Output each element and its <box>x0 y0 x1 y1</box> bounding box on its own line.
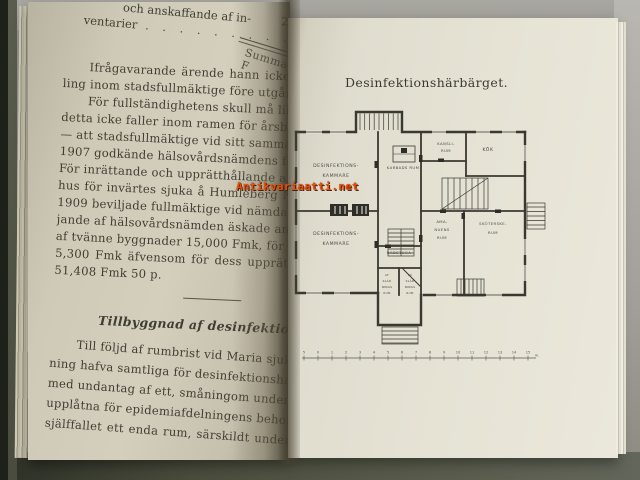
scale-number: 1 <box>331 351 333 355</box>
text-line: Till följd af rumbrist vid Maria sjukh <box>50 333 290 371</box>
scale-number: 15 <box>526 351 531 355</box>
disinfection-oven <box>330 204 369 216</box>
text-line: med undantag af ett, småningom under år <box>47 373 290 411</box>
dot-leader: . . . . . . . . . . <box>145 17 290 46</box>
watermark: Antikvariaatti.net <box>236 180 359 193</box>
scale-number: 11 <box>470 351 475 355</box>
porch-steps <box>360 114 398 131</box>
left-page-paragraph: Till följd af rumbrist vid Maria sjukh n… <box>44 333 290 451</box>
text-line: 51,408 Fmk 50 p. <box>54 262 290 290</box>
section-divider <box>183 298 241 302</box>
room-label: KAMMARE <box>322 173 349 179</box>
text-line: ning hafva samtliga för desinfektionshär… <box>49 353 290 391</box>
room-label: AF <box>385 273 389 277</box>
room-label: NINGS <box>405 285 416 289</box>
text-line: och anskaffande af in- <box>85 2 252 26</box>
scale-number: 7 <box>415 351 417 355</box>
left-page-top-fragment: och anskaffande af in- 2,5 ventarier . .… <box>83 2 290 47</box>
scale-number: 5 <box>387 351 389 355</box>
text-line: detta icke faller inom ramen för årsberä… <box>61 109 290 137</box>
room-label: RUM <box>383 291 391 295</box>
room-labels: DESINFEKTIONS- KAMMARE KARBADS RUM KANSL… <box>313 141 507 295</box>
scale-number: 14 <box>512 351 517 355</box>
room-label: RUM <box>437 235 447 240</box>
scale-number: 10 <box>456 351 461 355</box>
right-page: Desinfektionshärbärget. <box>288 18 618 458</box>
room-label: RUM <box>441 148 451 153</box>
text-line: — att stadsfullmäktige vid sitt sammantr… <box>60 126 290 154</box>
text-line: jande af hälsovårdsnämden äskade anslag <box>56 211 290 239</box>
room-label: KANSLI- <box>437 141 455 146</box>
room-label: KARBADS RUM <box>387 165 420 170</box>
text-line: upplåtna för epidemiafdelningens behof. <box>46 393 290 431</box>
scale-unit: m. <box>535 354 540 358</box>
scale-number: 2 <box>345 351 347 355</box>
text-line: ventarier <box>83 12 138 33</box>
text-line: 1909 beviljade fullmäktige vid nämda sam <box>57 194 290 222</box>
scale-number: 9 <box>443 351 446 355</box>
room-label: RUM <box>488 230 498 235</box>
text-line: själffallet ett enda rum, särskildt unde… <box>44 413 290 451</box>
room-label: RUM <box>406 291 414 295</box>
room-label: PÅ <box>408 272 412 277</box>
stair-bottom-right <box>457 279 484 296</box>
room-label: DESINFEKTIONS- <box>313 231 359 237</box>
left-page: och anskaffande af in- 2,5 ventarier . .… <box>28 2 290 460</box>
floor-plan-svg: DESINFEKTIONS- KAMMARE KARBADS RUM KANSL… <box>290 101 550 371</box>
text-line: 5,300 Fmk äfvensom för dess upprätth <box>55 245 290 273</box>
page-block-edges-right <box>616 22 626 454</box>
room-label: NUENS <box>434 227 449 232</box>
room-label: KLÄD <box>406 278 415 283</box>
text-line: af tvänne byggnader 15,000 Fmk, för sjuk <box>56 228 290 256</box>
scale-number: 6 <box>401 351 404 355</box>
scale-number: 4 <box>373 351 376 355</box>
plan-title: Desinfektionshärbärget. <box>345 75 508 90</box>
room-label: DESINFEKTIONS- <box>313 163 359 169</box>
stove <box>393 146 415 162</box>
floor-plan: DESINFEKTIONS- KAMMARE KARBADS RUM KANSL… <box>290 101 550 371</box>
scale-number: 13 <box>498 351 503 355</box>
text-line: ling inom stadsfullmäktige före utgången… <box>62 75 290 103</box>
text-line: 1907 godkände hälsovårdsnämdens förslag … <box>59 143 290 171</box>
scale-number: 8 <box>429 351 432 355</box>
left-page-body: Ifrågavarande ärende hann icke sp ling i… <box>47 58 290 444</box>
stair-exterior-right <box>527 203 545 229</box>
room-label: KAMMARE <box>322 241 349 247</box>
text-line: För fullständighetens skull må likväl nä <box>62 92 290 120</box>
room-label: AMA- <box>436 219 448 224</box>
background-left-edge <box>0 0 8 480</box>
room-label: SKÖTERSKE- <box>479 221 507 226</box>
room-label: BADSTUGA <box>387 250 411 255</box>
scale-bar: 50123456789101112131415m. <box>302 351 539 361</box>
scale-number: 0 <box>317 351 320 355</box>
room-label: KÖK <box>482 146 493 153</box>
scale-number: 3 <box>359 351 361 355</box>
book-gutter <box>278 0 300 466</box>
scale-number: 12 <box>484 351 489 355</box>
entrance-steps <box>382 327 418 344</box>
room-label: KLÄD <box>383 278 392 283</box>
section-heading: Tillbyggnad af desinfektionshärbärget <box>98 312 290 338</box>
stair-hall <box>442 178 488 209</box>
scale-number: 5 <box>303 351 305 355</box>
text-line: Ifrågavarande ärende hann icke sp <box>63 58 290 86</box>
room-label: NINGS <box>382 285 393 289</box>
